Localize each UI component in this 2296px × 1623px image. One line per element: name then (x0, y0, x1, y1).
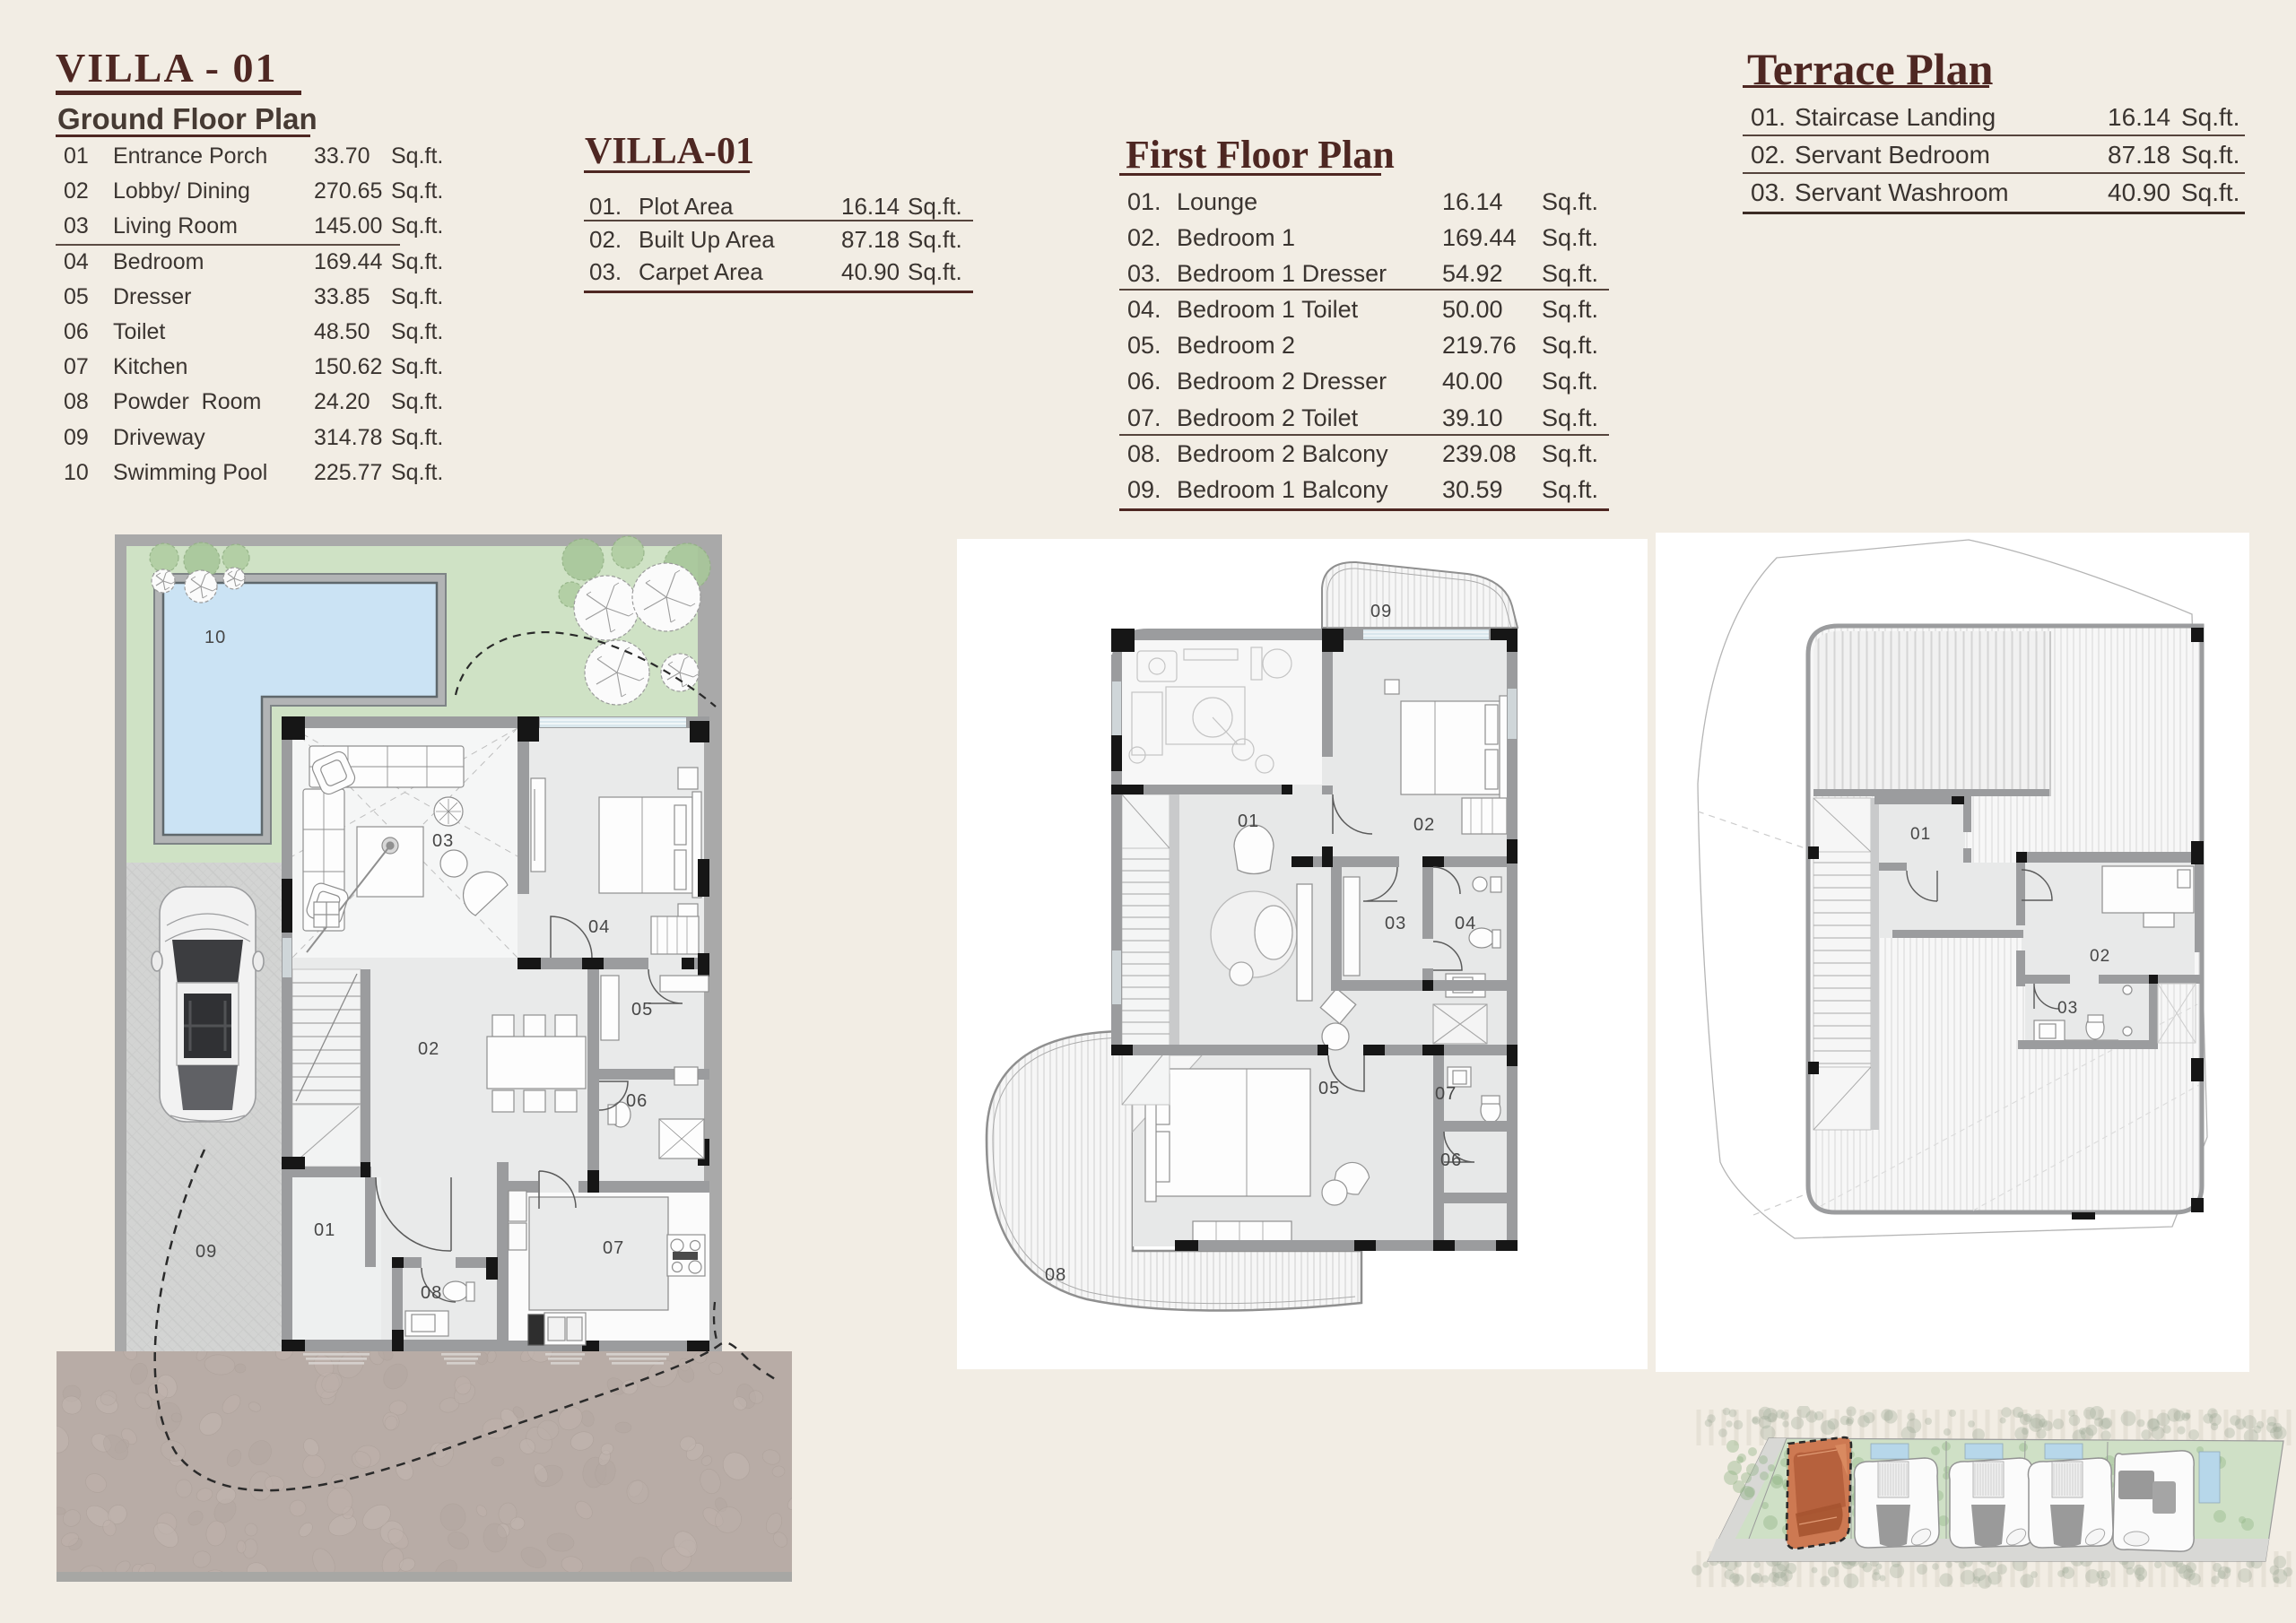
svg-text:05: 05 (631, 1000, 653, 1020)
svg-text:02: 02 (2090, 947, 2110, 966)
svg-text:08: 08 (1045, 1265, 1066, 1285)
svg-text:04: 04 (588, 917, 610, 937)
svg-text:01: 01 (1238, 811, 1259, 831)
svg-text:07: 07 (1435, 1084, 1457, 1104)
svg-text:05: 05 (1318, 1079, 1340, 1098)
svg-text:03: 03 (1385, 914, 1406, 933)
svg-text:09: 09 (196, 1242, 217, 1262)
svg-text:06: 06 (626, 1091, 648, 1111)
svg-text:02: 02 (1413, 815, 1435, 835)
svg-text:01: 01 (1910, 825, 1931, 844)
svg-text:03: 03 (432, 831, 454, 851)
svg-text:06: 06 (1440, 1150, 1462, 1170)
svg-text:01: 01 (314, 1220, 335, 1240)
svg-text:03: 03 (2057, 999, 2078, 1018)
svg-text:02: 02 (418, 1039, 439, 1059)
svg-text:07: 07 (603, 1238, 624, 1258)
svg-text:04: 04 (1455, 914, 1476, 933)
svg-text:09: 09 (1370, 602, 1392, 621)
svg-text:10: 10 (204, 628, 226, 647)
svg-text:08: 08 (421, 1283, 442, 1303)
